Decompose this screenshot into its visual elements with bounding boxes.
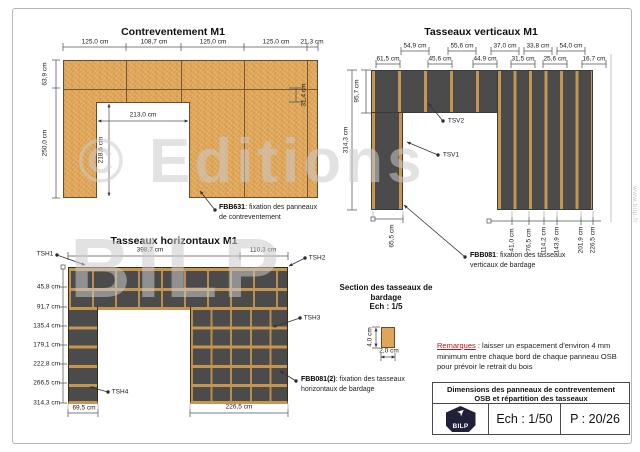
dim-label: 266,5 cm xyxy=(33,380,60,387)
dim-label: 76,5 cm xyxy=(526,228,533,251)
dim-label: 2,0 cm xyxy=(379,348,399,355)
callout-fbb081: FBB081: fixation des tasseauxverticaux d… xyxy=(470,251,565,271)
dim-label: 91,7 cm xyxy=(37,304,60,311)
part-label: TSV1 xyxy=(443,152,459,159)
dim-label: 65,5 cm xyxy=(389,224,396,247)
panel-joint-line xyxy=(307,61,308,197)
vertical-battens-right-section xyxy=(497,70,593,210)
horizontal-battens-top-band xyxy=(68,267,288,310)
dim-label: 31,4 cm xyxy=(301,83,308,106)
dim-label: 63,9 cm xyxy=(42,62,49,85)
diagram-title-contreventement: Contreventement M1 xyxy=(121,26,225,38)
page-number: P : 20/26 xyxy=(561,404,629,434)
contreventement-osb-panel xyxy=(63,60,318,198)
part-label: TSH4 xyxy=(112,389,129,396)
dim-label: 218,6 cm xyxy=(98,137,105,164)
dim-label: 226,5 cm xyxy=(226,404,253,411)
dim-label: 226,5 cm xyxy=(590,227,597,254)
horizontal-battens-left-column xyxy=(68,307,98,404)
part-label: TSH3 xyxy=(304,315,321,322)
remarks-note: Remarques : laisser un espacement d'envi… xyxy=(437,341,631,373)
dim-label: 54,0 cm xyxy=(559,43,582,50)
dim-label: 21,3 cm xyxy=(300,39,323,46)
title-block-line2: OSB et répartition des tasseaux xyxy=(433,394,629,403)
logo-arrow-icon: ➤ xyxy=(454,405,468,419)
dim-label: 25,6 cm xyxy=(543,56,566,63)
dim-label: 37,0 cm xyxy=(493,43,516,50)
dim-label: 135,4 cm xyxy=(33,323,60,330)
dim-label: 314,3 cm xyxy=(343,127,350,154)
diagram-title-tasseaux-horizontaux: Tasseaux horizontaux M1 xyxy=(110,235,237,247)
batten-section-profile xyxy=(381,327,395,348)
dim-label: 95,7 cm xyxy=(354,79,361,102)
dim-label: 16,7 cm xyxy=(582,56,605,63)
dim-label: 110,3 cm xyxy=(250,247,276,254)
remarks-label: Remarques xyxy=(437,341,476,350)
dim-label: 44,9 cm xyxy=(473,56,496,63)
title-block-heading: Dimensions des panneaux de contreventeme… xyxy=(433,383,629,404)
horizontal-battens-right-section xyxy=(190,307,288,404)
title-block-line1: Dimensions des panneaux de contreventeme… xyxy=(433,385,629,394)
dim-label: 125,0 cm xyxy=(82,39,109,46)
dim-label: 398,7 cm xyxy=(137,247,164,254)
bilp-logo-cell: ➤ BILP xyxy=(433,404,489,434)
callout-fbb631: FBB631: fixation des panneauxde contreve… xyxy=(219,203,317,223)
dim-label: 201,9 cm xyxy=(578,227,585,254)
dim-label: 314,3 cm xyxy=(33,400,60,407)
watermark-url: www.bilp.fr xyxy=(631,186,638,223)
dim-label: 125,0 cm xyxy=(263,39,290,46)
dim-label: 125,0 cm xyxy=(200,39,227,46)
dim-label: 33,8 cm xyxy=(526,43,549,50)
scale-value: Ech : 1/50 xyxy=(489,404,561,434)
bilp-logo: ➤ BILP xyxy=(446,406,476,432)
dim-label: 69,5 cm xyxy=(72,405,95,412)
part-label: TSH2 xyxy=(309,255,326,262)
panel-joint-line xyxy=(64,89,317,90)
vertical-battens-left-column xyxy=(371,113,403,210)
dim-label: 31,5 cm xyxy=(511,56,534,63)
logo-text: BILP xyxy=(452,423,468,430)
dim-label: 45,6 cm xyxy=(428,56,451,63)
callout-fbb0812: FBB081(2): fixation des tasseauxhorizont… xyxy=(301,375,405,395)
dim-label: 54,9 cm xyxy=(403,43,426,50)
dim-label: 114,2 cm xyxy=(541,227,548,253)
dim-label: 61,5 cm xyxy=(376,56,399,63)
dim-label: 222,8 cm xyxy=(33,361,60,368)
dim-label: 41,0 cm xyxy=(509,228,516,251)
part-label: TSH1 xyxy=(37,251,54,258)
title-block-row: ➤ BILP Ech : 1/50 P : 20/26 xyxy=(433,404,629,434)
section-detail-title: Section des tasseaux de bardage Ech : 1/… xyxy=(340,283,433,312)
dim-label: 250,0 cm xyxy=(42,130,49,157)
panel-joint-line xyxy=(244,61,245,197)
dim-label: 179,1 cm xyxy=(33,342,60,349)
dim-label: 108,7 cm xyxy=(141,39,168,46)
dim-label: 213,0 cm xyxy=(130,112,157,119)
title-block: Dimensions des panneaux de contreventeme… xyxy=(432,382,630,435)
dim-label: 45,8 cm xyxy=(37,284,60,291)
dim-label: 143,9 cm xyxy=(554,227,561,254)
dim-label: 55,6 cm xyxy=(450,43,473,50)
part-label: TSV2 xyxy=(448,118,464,125)
dim-label: 4,0 cm xyxy=(367,327,374,347)
diagram-title-tasseaux-verticaux: Tasseaux verticaux M1 xyxy=(424,26,538,38)
